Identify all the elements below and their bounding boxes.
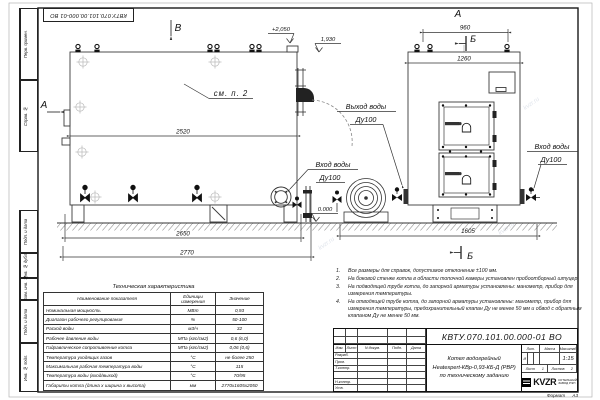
- margin-label: Подп. и дата: [20, 301, 30, 342]
- svg-text:2650: 2650: [175, 231, 190, 238]
- param-unit: °С: [171, 362, 216, 371]
- margin-label: Справ. №: [20, 81, 30, 151]
- table-row: Гидравлическое сопротивление котла МПа (…: [44, 343, 264, 352]
- signature-row: Т.контр.: [334, 366, 426, 373]
- svg-text:А: А: [454, 9, 462, 20]
- role-label: Разраб.: [334, 353, 358, 359]
- tech-table-title: Техническая характеристика: [43, 284, 264, 290]
- ground-line: [57, 223, 557, 231]
- margin-box-podp-data-1: Подп. и дата: [19, 210, 38, 253]
- svg-text:см. п. 2: см. п. 2: [214, 89, 249, 98]
- sheets-value: 2: [571, 367, 573, 371]
- param-value: 70/95: [216, 371, 264, 380]
- logo-subtitle: ЗАВОД РЭП: [558, 382, 577, 385]
- note-text: На боковой стенке котла в области топочн…: [348, 276, 586, 283]
- tech-table-header-row: Наименование показателя Единицы измерени…: [44, 293, 264, 306]
- table-row: Диапазон рабочего регулирования % 50-100: [44, 315, 264, 324]
- note-item: 2. На боковой стенке котла в области топ…: [336, 276, 586, 283]
- product-name-line: Heatexpert-КВр-0,93-КБ-Д (РВР): [433, 364, 516, 373]
- tech-table-header: Наименование показателя: [44, 293, 171, 306]
- signature-row: Пров.: [334, 359, 426, 366]
- margin-label: Подп. и дата: [20, 211, 30, 252]
- param-value: 0,6 (6,0): [216, 334, 264, 343]
- margin-label: Перв. примен.: [20, 9, 30, 79]
- param-name: Температура воды (вход/выход): [44, 371, 171, 380]
- param-name: Расход воды: [44, 324, 171, 333]
- param-unit: °С: [171, 371, 216, 380]
- view-label-a-front: А: [454, 9, 462, 20]
- role-label: Т.контр.: [334, 366, 358, 372]
- margin-box-perv-primen: Перв. примен.: [19, 8, 38, 80]
- doc-number-rotated: КВТУ.070.101.00.000-01 ВО: [50, 12, 127, 18]
- margin-label: Инв. № дубл.: [20, 254, 30, 277]
- sheet-row: Лист 1 Листов 2: [522, 365, 577, 373]
- role-label: Утв.: [334, 385, 358, 391]
- margin-box-inv-dubl: Инв. № дубл.: [19, 253, 38, 278]
- format-note: Формат А3: [478, 393, 578, 398]
- title-block: КВТУ.070.101.00.000-01 ВО Изм. Лист N до…: [333, 328, 578, 392]
- note-item: 3. На подводящей трубе котла, до запорно…: [336, 284, 586, 298]
- table-row: Рабочее давление воды МПа (кгс/см2) 0,6 …: [44, 334, 264, 343]
- logo-text: KVZR: [533, 377, 556, 387]
- note-number: 3.: [336, 284, 348, 298]
- product-name: Котел водогрейный Heatexpert-КВр-0,93-КБ…: [427, 345, 522, 391]
- signature-row: Утв.: [334, 385, 426, 391]
- signature-grid: Изм. Лист N докум. Подп. Дата Разраб. Пр…: [334, 345, 427, 391]
- table-row: Номинальная мощность МВт 0,93: [44, 306, 264, 315]
- margin-box-inv-podl: Инв. № подл.: [19, 343, 38, 392]
- param-name: Габариты котла (длина х ширина х высота): [44, 381, 171, 390]
- sheets-label: Листов: [551, 367, 564, 371]
- product-name-line: Котел водогрейный: [448, 355, 501, 364]
- front-view: [408, 45, 520, 222]
- param-unit: мм: [171, 381, 216, 390]
- param-value: не более 250: [216, 352, 264, 361]
- tech-characteristics-table: Техническая характеристика Наименование …: [43, 284, 264, 391]
- param-value: 0,06 (0,6): [216, 343, 264, 352]
- header-cell: N докум.: [358, 345, 388, 352]
- signature-row: Н.контр.: [334, 379, 426, 386]
- svg-text:А: А: [40, 100, 48, 111]
- svg-text:Выход воды: Выход воды: [346, 102, 387, 111]
- role-label: Пров.: [334, 359, 358, 365]
- svg-text:Ду100: Ду100: [319, 173, 341, 182]
- svg-text:Б: Б: [467, 251, 473, 261]
- svg-text:2770: 2770: [179, 250, 194, 257]
- header-cell: Лист: [346, 345, 358, 352]
- signature-row: Разраб.: [334, 353, 426, 360]
- signature-header-row: Изм. Лист N докум. Подп. Дата: [334, 345, 426, 353]
- svg-text:0.000: 0.000: [318, 207, 333, 213]
- param-unit: МПа (кгс/см2): [171, 334, 216, 343]
- change-table: [334, 329, 427, 344]
- format-value: А3: [572, 393, 578, 398]
- svg-text:1260: 1260: [457, 56, 471, 63]
- format-label: Формат: [547, 393, 565, 398]
- margin-label: Взам. инв. №: [20, 279, 30, 299]
- table-row: Температура воды (вход/выход) °С 70/95: [44, 371, 264, 380]
- note-text: На подводящей трубе котла, до запорной а…: [348, 284, 586, 298]
- param-unit: м3/ч: [171, 324, 216, 333]
- param-value: 50-100: [216, 315, 264, 324]
- param-name: Номинальная мощность: [44, 306, 171, 315]
- note-number: 4.: [336, 299, 348, 320]
- note-item: 1. Все размеры для справок, допустимое о…: [336, 268, 586, 275]
- svg-text:Б: Б: [470, 34, 476, 44]
- company-logo: KVZR КОТЕЛЬНЫЙ ЗАВОД РЭП: [522, 373, 577, 391]
- tech-table-header: Единицы измерения: [171, 293, 216, 306]
- lit-mass-scale-labels: Лит. Масса Масштаб: [522, 345, 577, 353]
- svg-text:Вход воды: Вход воды: [316, 160, 352, 169]
- param-name: Диапазон рабочего регулирования: [44, 315, 171, 324]
- margin-box-vzam-inv: Взам. инв. №: [19, 278, 38, 300]
- table-row: Максимальная рабочая температура воды °С…: [44, 362, 264, 371]
- param-value: 115: [216, 362, 264, 371]
- svg-text:В: В: [175, 23, 182, 34]
- note-item: 4. На отводящей трубе котла, до запорной…: [336, 299, 586, 320]
- param-value: 2770х1605х2050: [216, 381, 264, 390]
- note-number: 1.: [336, 268, 348, 275]
- lit-label: Лит.: [522, 345, 540, 352]
- front-base: [433, 205, 497, 222]
- rotated-doc-number-stamp: КВТУ.070.101.00.000-01 ВО: [43, 8, 134, 22]
- table-row: Габариты котла (длина х ширина х высота)…: [44, 381, 264, 390]
- notes-block: 1. Все размеры для справок, допустимое о…: [336, 268, 586, 321]
- header-cell: Подп.: [388, 345, 407, 352]
- note-text: На отводящей трубе котла, до запорной ар…: [348, 299, 586, 320]
- svg-text:Вход воды: Вход воды: [535, 142, 571, 151]
- table-row: Температура уходящих газов °С не более 2…: [44, 352, 264, 361]
- svg-text:2520: 2520: [175, 129, 190, 136]
- param-unit: МПа (кгс/см2): [171, 343, 216, 352]
- sheet-label: Лист: [526, 367, 535, 371]
- margin-label: Инв. № подл.: [20, 344, 30, 391]
- param-unit: °С: [171, 352, 216, 361]
- note-text: Все размеры для справок, допустимое откл…: [348, 268, 586, 275]
- param-value: 32: [216, 324, 264, 333]
- scale-value: 1:15: [560, 353, 577, 364]
- margin-box-podp-data-2: Подп. и дата: [19, 300, 38, 343]
- table-row: Расход воды м3/ч 32: [44, 324, 264, 333]
- margin-box-sprav: Справ. №: [19, 80, 38, 152]
- svg-text:Ду100: Ду100: [355, 115, 377, 124]
- role-label: Н.контр.: [334, 379, 358, 385]
- svg-text:+2,050: +2,050: [272, 27, 291, 33]
- param-name: Гидравлическое сопротивление котла: [44, 343, 171, 352]
- scale-label: Масштаб: [560, 345, 577, 352]
- param-name: Рабочее давление воды: [44, 334, 171, 343]
- param-name: Температура уходящих газов: [44, 352, 171, 361]
- document-number: КВТУ.070.101.00.000-01 ВО: [427, 329, 577, 344]
- svg-text:Ду100: Ду100: [540, 155, 562, 164]
- note-number: 2.: [336, 276, 348, 283]
- drawing-sheet: { "doc": { "number": "КВТУ.070.101.00.00…: [0, 0, 600, 400]
- param-unit: МВт: [171, 306, 216, 315]
- signature-row: [334, 372, 426, 379]
- header-cell: Изм.: [334, 345, 346, 352]
- logo-mark-icon: [522, 378, 531, 387]
- svg-text:1605: 1605: [461, 228, 475, 235]
- mass-value: [540, 353, 560, 364]
- param-name: Максимальная рабочая температура воды: [44, 362, 171, 371]
- sheet-value: 1: [542, 367, 544, 371]
- param-unit: %: [171, 315, 216, 324]
- mass-label: Масса: [540, 345, 560, 352]
- svg-text:960: 960: [460, 25, 471, 32]
- param-value: 0,93: [216, 306, 264, 315]
- tech-table-header: Значение: [216, 293, 264, 306]
- svg-text:1,930: 1,930: [321, 37, 336, 43]
- header-cell: Дата: [407, 345, 426, 352]
- product-name-line: по техническому заданию: [440, 372, 509, 381]
- lit-mass-scale-values: И 1:15: [522, 353, 577, 365]
